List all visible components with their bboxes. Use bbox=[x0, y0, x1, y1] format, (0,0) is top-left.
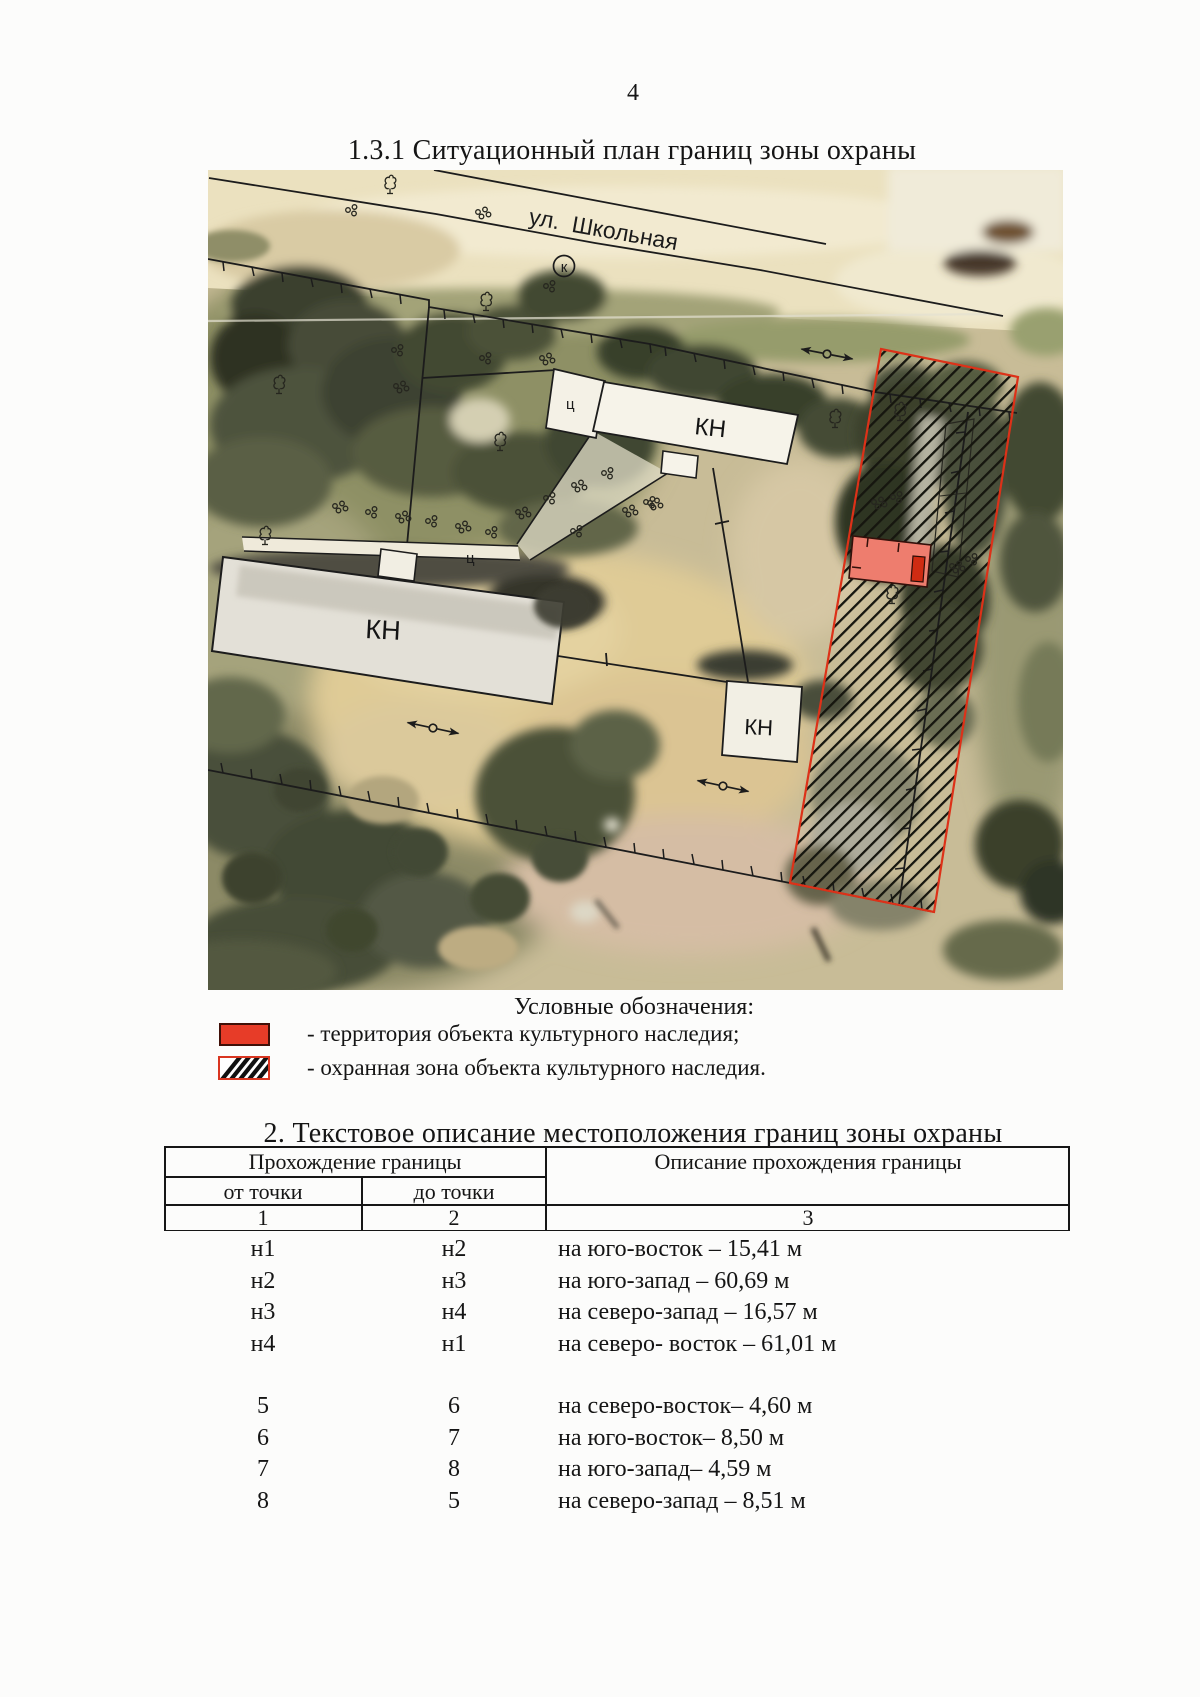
svg-text:КН: КН bbox=[693, 413, 727, 443]
svg-text:к: к bbox=[561, 259, 568, 276]
svg-text:КН: КН bbox=[365, 614, 402, 646]
svg-text:ц: ц bbox=[566, 396, 575, 413]
svg-text:КН: КН bbox=[744, 714, 774, 740]
svg-text:ц: ц bbox=[466, 550, 475, 567]
